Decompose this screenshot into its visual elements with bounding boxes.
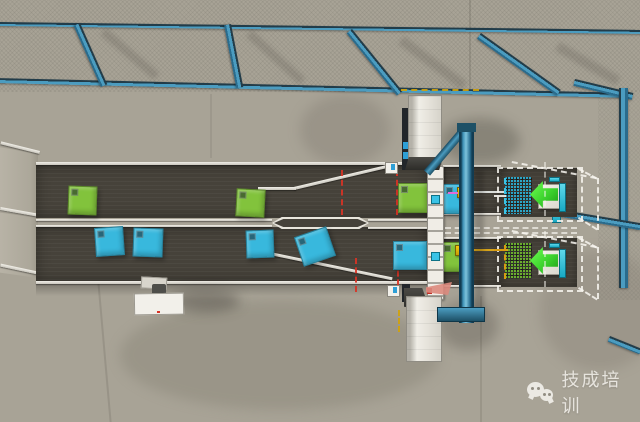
product-box-blue[interactable] xyxy=(94,226,125,257)
factory-simulation-viewport[interactable]: 技成培训 xyxy=(0,0,640,422)
product-box-blue[interactable] xyxy=(393,241,427,270)
product-box-blue[interactable] xyxy=(133,227,164,257)
wireframe-top-unit xyxy=(497,167,583,222)
elevator-sensor xyxy=(403,142,408,149)
transfer-strip xyxy=(427,166,444,300)
edge-sensor-led-bottom xyxy=(393,287,397,293)
edge-sensor-led-top xyxy=(391,164,395,170)
wireframe-line xyxy=(597,178,599,230)
gantry-foot xyxy=(437,307,485,322)
gantry-post[interactable] xyxy=(459,127,474,323)
product-box-blue[interactable] xyxy=(294,226,336,266)
reference-tick-white xyxy=(494,195,506,197)
watermark: 技成培训 xyxy=(527,377,640,407)
wireframe-bottom-unit xyxy=(497,236,583,292)
gantry-post-cap xyxy=(457,123,476,132)
gantry-post-shadow xyxy=(474,170,484,320)
reference-tick-orange xyxy=(494,249,506,251)
watermark-text: 技成培训 xyxy=(561,366,640,418)
elevator-sensor xyxy=(403,152,408,159)
photo-sensor-top[interactable] xyxy=(431,195,440,204)
product-box-green[interactable] xyxy=(235,188,265,217)
product-box-green[interactable] xyxy=(398,183,428,213)
wechat-icon xyxy=(527,380,554,404)
elevator-label-dashes xyxy=(401,89,479,91)
elevator-yellow-dash xyxy=(398,310,400,332)
panel-led-red xyxy=(157,311,160,313)
elevator-bottom[interactable] xyxy=(406,296,442,362)
photo-sensor-bottom[interactable] xyxy=(431,252,440,261)
product-box-blue[interactable] xyxy=(246,230,275,259)
wireframe-line xyxy=(597,247,599,299)
product-box-green[interactable] xyxy=(68,186,98,216)
pusher-magenta-mark xyxy=(448,192,458,194)
